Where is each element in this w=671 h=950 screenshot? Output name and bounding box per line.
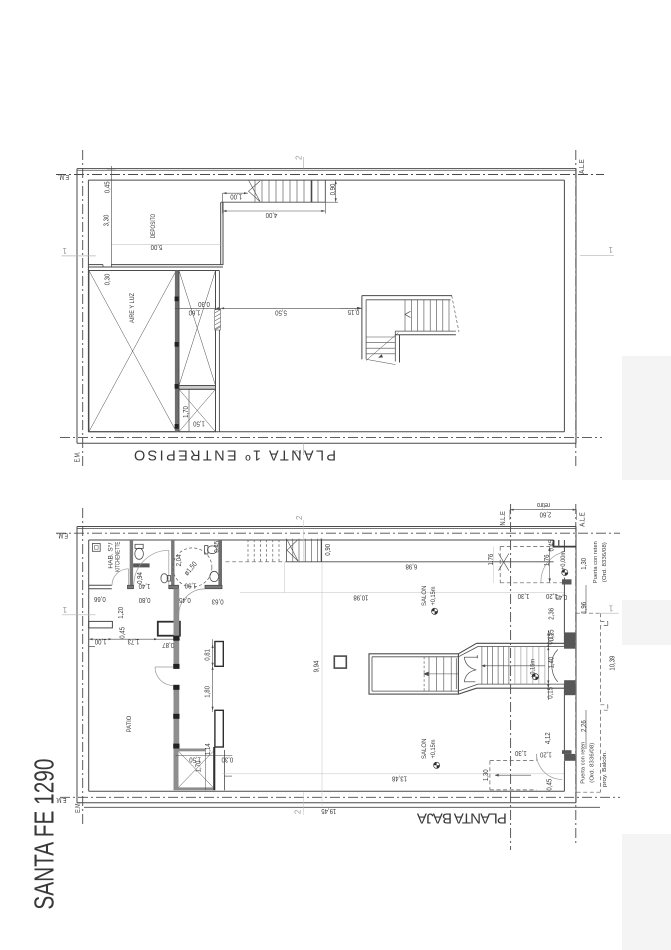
svg-text:1: 1: [608, 245, 613, 254]
svg-text:1,70: 1,70: [194, 761, 203, 773]
svg-text:0,45: 0,45: [546, 540, 555, 552]
svg-text:0,94: 0,94: [135, 572, 144, 584]
svg-text:2,36: 2,36: [546, 608, 555, 620]
svg-text:0,45: 0,45: [545, 779, 554, 791]
svg-text:1,30: 1,30: [579, 558, 588, 570]
svg-text:PLANTA 1º ENTREPISO: PLANTA 1º ENTREPISO: [134, 447, 336, 463]
svg-text:1,60: 1,60: [189, 309, 201, 318]
svg-text:KITCHENETTE: KITCHENETTE: [115, 542, 122, 572]
svg-text:0,30: 0,30: [221, 755, 233, 764]
svg-text:SANTA FE 1290: SANTA FE 1290: [29, 759, 60, 910]
svg-text:2: 2: [295, 155, 304, 160]
svg-text:E.M.: E.M.: [58, 173, 69, 182]
svg-text:1,00: 1,00: [95, 638, 107, 647]
svg-text:Puerta con reten: Puerta con reten: [593, 541, 599, 583]
svg-text:3,30: 3,30: [101, 215, 110, 227]
svg-text:1,40: 1,40: [546, 657, 555, 669]
svg-text:N.L.E: N.L.E: [498, 511, 507, 526]
svg-text:retiro: retiro: [537, 501, 550, 510]
svg-text:1,30: 1,30: [515, 749, 527, 758]
svg-text:0,15: 0,15: [546, 630, 555, 642]
svg-text:0,90: 0,90: [328, 184, 337, 196]
svg-text:2,04: 2,04: [174, 555, 183, 567]
svg-text:0,30: 0,30: [198, 300, 210, 309]
svg-text:1,96: 1,96: [579, 602, 588, 614]
svg-text:+0,15m: +0,15m: [430, 740, 437, 759]
svg-text:2,60: 2,60: [540, 511, 552, 520]
svg-text:6,98: 6,98: [406, 563, 418, 572]
svg-text:+0,15m: +0,15m: [430, 587, 437, 606]
svg-text:DEPOSITO: DEPOSITO: [150, 214, 157, 239]
svg-text:4,00: 4,00: [266, 211, 278, 220]
svg-text:E.M.: E.M.: [73, 452, 82, 463]
svg-text:10,98: 10,98: [353, 593, 368, 602]
svg-text:4,12: 4,12: [543, 732, 552, 744]
svg-text:1,40: 1,40: [139, 582, 151, 591]
svg-text:1,00: 1,00: [230, 192, 242, 201]
svg-text:1,20: 1,20: [540, 751, 552, 760]
svg-text:0,30: 0,30: [102, 274, 111, 286]
svg-text:(Ord. 8336/08): (Ord. 8336/08): [602, 542, 608, 582]
svg-text:1: 1: [62, 605, 67, 614]
svg-text:2,26: 2,26: [579, 720, 588, 732]
svg-text:0,45: 0,45: [179, 596, 191, 605]
svg-text:1,70: 1,70: [181, 406, 190, 418]
svg-text:10,39: 10,39: [608, 656, 617, 671]
svg-text:1,90: 1,90: [185, 582, 197, 591]
svg-text:19,45: 19,45: [321, 807, 336, 816]
svg-text:A.L.E: A.L.E: [577, 159, 586, 174]
svg-text:2: 2: [295, 515, 304, 520]
svg-text:Puerta con reten: Puerta con reten: [580, 742, 586, 784]
svg-text:A.L.E: A.L.E: [578, 512, 587, 527]
svg-text:0,45: 0,45: [556, 593, 568, 602]
svg-text:1,30: 1,30: [518, 592, 530, 601]
svg-text:PLANTA BAJA: PLANTA BAJA: [417, 810, 507, 827]
svg-text:SALON: SALON: [421, 738, 428, 759]
svg-text:(Ord. 8336/08): (Ord. 8336/08): [589, 743, 595, 783]
svg-text:5,50: 5,50: [275, 309, 287, 318]
svg-text:0,63: 0,63: [212, 598, 224, 607]
svg-text:0,45: 0,45: [102, 181, 111, 193]
svg-text:1: 1: [608, 604, 613, 613]
svg-text:0,66: 0,66: [94, 595, 106, 604]
svg-text:E.M.: E.M.: [57, 532, 68, 541]
svg-text:2: 2: [294, 809, 303, 814]
svg-text:E.M.: E.M.: [73, 802, 82, 813]
svg-text:0,81: 0,81: [203, 649, 212, 661]
svg-text:1,20: 1,20: [116, 607, 125, 619]
svg-text:9,94: 9,94: [312, 661, 321, 673]
svg-text:0,45: 0,45: [118, 627, 127, 639]
svg-text:1,76: 1,76: [542, 555, 551, 567]
svg-text:HAB. S°/: HAB. S°/: [108, 542, 115, 568]
svg-text:13,48: 13,48: [392, 775, 407, 784]
svg-text:SALON: SALON: [421, 585, 428, 606]
svg-text:0,90: 0,90: [323, 544, 332, 556]
svg-text:1,14: 1,14: [203, 743, 212, 755]
svg-text:PATIO: PATIO: [126, 716, 133, 733]
svg-text:0,15: 0,15: [546, 687, 555, 699]
svg-text:1,76: 1,76: [486, 554, 495, 566]
svg-text:1,30: 1,30: [481, 769, 490, 781]
svg-text:1,80: 1,80: [203, 686, 212, 698]
svg-text:+0,00m: +0,00m: [560, 551, 567, 570]
svg-text:1: 1: [62, 246, 67, 255]
svg-text:proy. Balcón.: proy. Balcón.: [602, 751, 608, 787]
svg-text:0,87: 0,87: [162, 641, 174, 650]
svg-text:1,50: 1,50: [193, 420, 205, 429]
svg-text:1,73: 1,73: [128, 638, 140, 647]
svg-text:0,80: 0,80: [139, 596, 151, 605]
svg-text:AIRE Y LUZ: AIRE Y LUZ: [129, 293, 136, 323]
